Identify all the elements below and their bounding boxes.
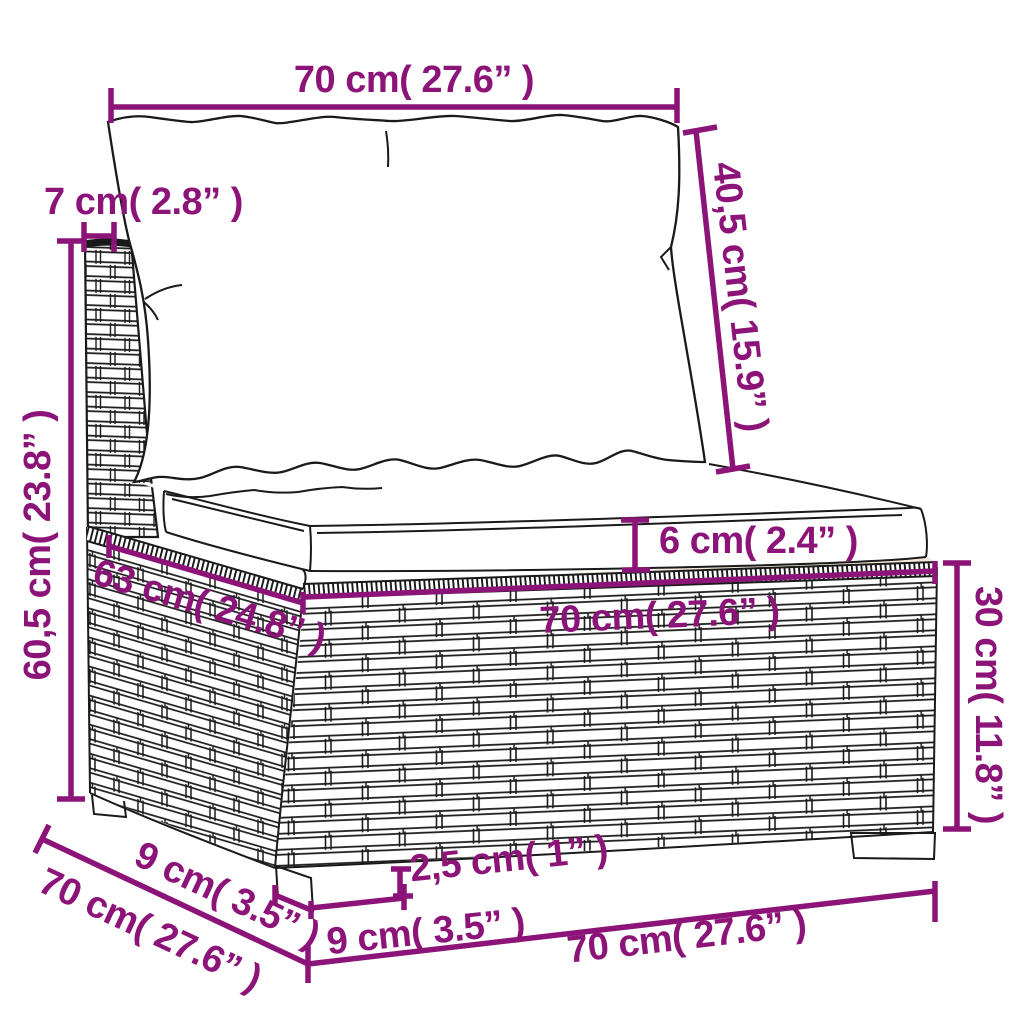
svg-text:30 cm( 11.8” ): 30 cm( 11.8” ): [967, 586, 1009, 824]
svg-text:6 cm( 2.4” ): 6 cm( 2.4” ): [659, 520, 858, 562]
svg-text:60,5 cm( 23.8” ): 60,5 cm( 23.8” ): [17, 410, 59, 681]
svg-text:70 cm( 27.6” ): 70 cm( 27.6” ): [294, 59, 534, 101]
svg-text:7 cm( 2.8” ): 7 cm( 2.8” ): [44, 181, 243, 223]
